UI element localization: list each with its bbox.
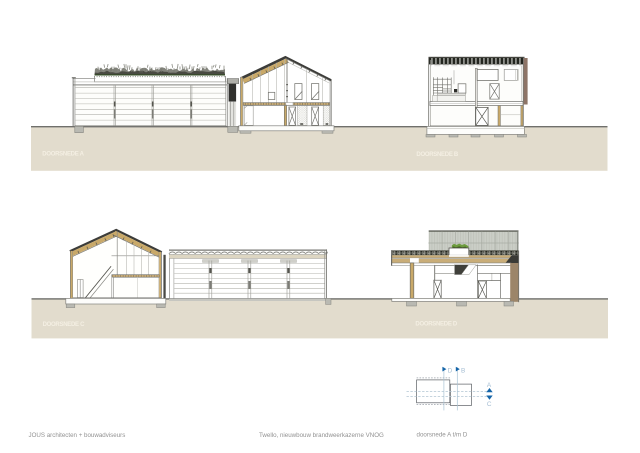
svg-text:A: A [487,382,492,389]
svg-text:DOORSNEDE A: DOORSNEDE A [42,151,84,157]
svg-text:D: D [448,367,453,374]
svg-text:doorsnede A t/m D: doorsnede A t/m D [417,432,468,439]
svg-text:DOORSNEDE D: DOORSNEDE D [415,322,458,328]
svg-text:Twello, nieuwbouw brandweerkaz: Twello, nieuwbouw brandweerkazerne VNOG [259,432,384,439]
svg-text:C: C [487,401,492,408]
svg-text:DOORSNEDE B: DOORSNEDE B [416,152,459,158]
svg-text:DOORSNEDE C: DOORSNEDE C [43,322,86,328]
svg-text:JOUS architecten + bouwadviseu: JOUS architecten + bouwadviseurs [29,432,126,439]
svg-text:B: B [461,367,465,374]
